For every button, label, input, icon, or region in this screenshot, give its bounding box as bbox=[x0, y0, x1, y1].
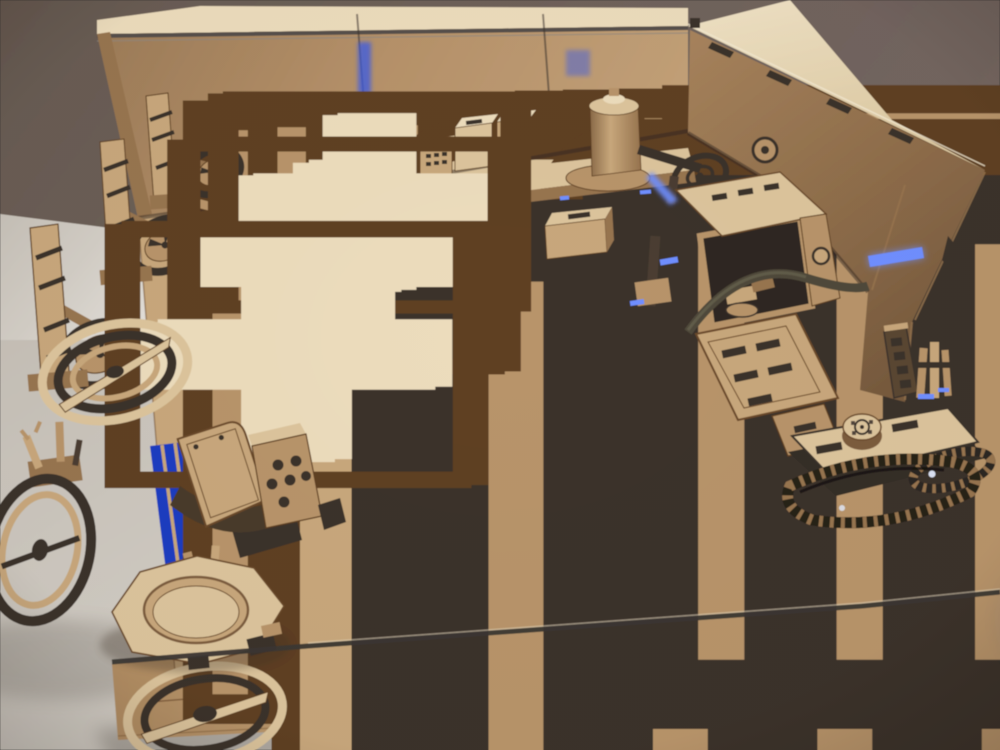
vignette bbox=[0, 0, 1000, 750]
terrain-photo-svg bbox=[0, 0, 1000, 750]
terrain-photo bbox=[0, 0, 1000, 750]
